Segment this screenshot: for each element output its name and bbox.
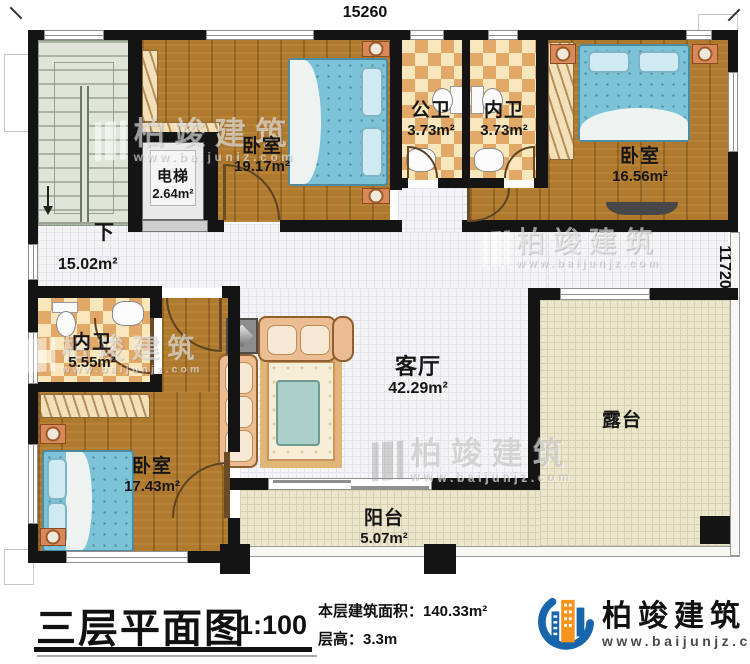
label-terrace: 露台 xyxy=(572,410,672,432)
floor-height-text: 层高：3.3m xyxy=(318,628,397,649)
lamp-icon xyxy=(556,47,571,62)
wall-terrace-top-a xyxy=(528,288,560,300)
sofa-armrest xyxy=(332,316,354,362)
corner-tick xyxy=(10,7,23,20)
window xyxy=(28,332,38,384)
bed-sheet xyxy=(66,452,92,550)
wall-h3a xyxy=(390,178,408,188)
label-elevator: 电梯 2.64m² xyxy=(133,168,213,201)
pillar xyxy=(700,516,730,544)
window xyxy=(28,444,38,524)
window xyxy=(488,30,518,40)
door-leaf-bath-public xyxy=(407,146,409,178)
pillow xyxy=(638,51,680,73)
label-living: 客厅 42.29m² xyxy=(368,354,468,399)
window xyxy=(728,72,738,152)
floor-area-text: 本层建筑面积：140.33m² xyxy=(318,600,487,621)
wall-bath3-bottom xyxy=(28,382,162,392)
plan-title: 三层平面图 xyxy=(36,596,246,654)
wall-h5a xyxy=(28,286,162,298)
door-leaf-bedroom3 xyxy=(224,452,230,518)
wall-bath3-right-a xyxy=(150,286,162,318)
sliding-door xyxy=(268,478,432,490)
window xyxy=(560,288,650,300)
title-underline-thin xyxy=(37,655,317,657)
pillar xyxy=(424,544,456,574)
wall-h3b xyxy=(438,178,504,188)
door-leaf-bedroom2 xyxy=(467,188,470,222)
lamp-icon xyxy=(46,427,61,442)
pillow xyxy=(588,51,630,73)
label-stair-down: 下 xyxy=(94,216,114,245)
label-bedroom2: 卧室 16.56m² xyxy=(590,146,690,186)
lamp-icon xyxy=(698,47,713,62)
lamp-icon xyxy=(369,189,384,204)
stair-down-arrow xyxy=(47,186,49,212)
dimension-right: 11720 xyxy=(715,237,733,297)
wall-living-bottom-b xyxy=(432,478,540,490)
nightstand xyxy=(40,528,66,546)
lamp-icon xyxy=(46,530,61,545)
brand-logo-icon xyxy=(538,594,594,654)
elevator-door xyxy=(142,220,208,232)
living-east-extension xyxy=(548,232,728,288)
title-underline xyxy=(34,647,312,652)
brand-name: 柏竣建筑 xyxy=(602,600,750,633)
wall-stair-right xyxy=(128,30,142,232)
lamp-icon xyxy=(369,42,384,57)
nightstand xyxy=(550,44,576,64)
sink xyxy=(474,148,504,172)
tv xyxy=(606,202,678,215)
title-bar: 三层平面图 1:100 本层建筑面积：140.33m² 层高：3.3m xyxy=(0,592,750,664)
label-bath-inner-left: 内卫 5.55m² xyxy=(42,332,142,372)
stair-edge xyxy=(38,222,128,224)
floorplan-page: 柏竣建筑 www.baijunjz.com 柏竣建筑 www.baijunjz.… xyxy=(0,0,750,664)
wall-h2a xyxy=(208,220,224,232)
bed-sheet xyxy=(580,108,688,140)
window xyxy=(206,30,314,40)
label-hall-area: 15.02m² xyxy=(58,256,118,274)
dimension-top: 15260 xyxy=(300,4,430,22)
hall-bath-strip xyxy=(398,188,470,232)
stair-divider xyxy=(80,86,89,224)
label-bath-inner-top: 内卫 3.73m² xyxy=(454,100,554,140)
label-bedroom1: 卧室 19.17m² xyxy=(212,136,312,176)
plan-scale: 1:100 xyxy=(238,610,307,641)
pillow xyxy=(361,67,383,117)
pillow xyxy=(361,127,383,177)
window xyxy=(28,244,38,280)
window xyxy=(44,30,104,40)
window xyxy=(410,30,444,40)
wall-bedroom2-bottom xyxy=(462,220,738,232)
window xyxy=(686,30,712,40)
door-leaf-bath-inner-top xyxy=(533,146,535,178)
wardrobe xyxy=(142,50,158,122)
nightstand xyxy=(40,424,66,444)
coffee-table xyxy=(276,380,320,446)
terrace-west-strip xyxy=(528,490,540,546)
label-balcony: 阳台 5.07m² xyxy=(334,508,434,548)
window xyxy=(66,551,188,563)
nightstand xyxy=(692,44,718,64)
nightstand xyxy=(362,41,390,57)
hall-east-strip xyxy=(402,232,548,288)
wall-h3c xyxy=(534,178,548,188)
wall-h2b xyxy=(280,220,402,232)
wardrobe xyxy=(40,394,150,418)
brand-block: 柏竣建筑 www.baijunjz.com xyxy=(538,594,750,654)
floor-plan: 柏竣建筑 www.baijunjz.com 柏竣建筑 www.baijunjz.… xyxy=(0,0,750,592)
pillow xyxy=(47,458,67,500)
sofa xyxy=(258,316,336,362)
label-bedroom3: 卧室 17.43m² xyxy=(102,456,202,496)
nightstand xyxy=(362,188,390,204)
bed xyxy=(578,44,690,142)
pillar xyxy=(220,544,250,574)
door-leaf-bath-inner-left xyxy=(150,318,154,374)
door-leaf-suite-entry xyxy=(219,298,222,352)
wall-living-bottom-a xyxy=(228,478,268,490)
wall-bedroom3-right-a xyxy=(228,286,240,452)
wall-living-right xyxy=(528,288,540,490)
brand-url: www.baijunjz.com xyxy=(602,633,750,649)
sofa-cushion xyxy=(267,325,297,355)
sofa-cushion xyxy=(300,325,330,355)
balcony-parapet xyxy=(236,546,740,557)
